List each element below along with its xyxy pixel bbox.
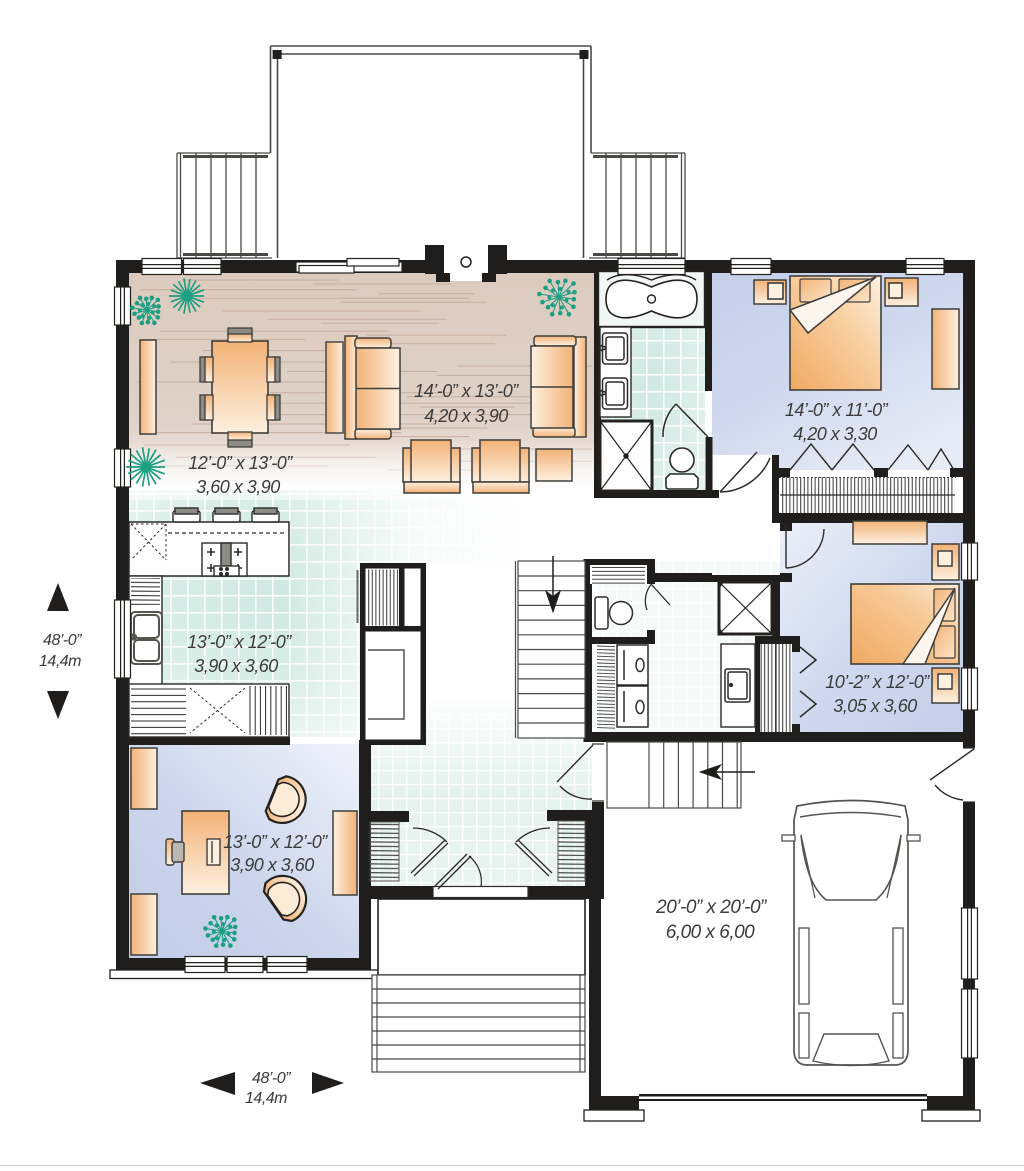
svg-text:3,90 x 3,60: 3,90 x 3,60 [194, 656, 278, 676]
svg-text:48’-0”: 48’-0” [252, 1070, 291, 1087]
svg-text:14’-0” x 11’-0”: 14’-0” x 11’-0” [785, 400, 889, 420]
svg-text:4,20 x 3,30: 4,20 x 3,30 [793, 424, 877, 444]
svg-text:3,90 x 3,60: 3,90 x 3,60 [230, 855, 314, 875]
svg-text:10’-2” x 12’-0”: 10’-2” x 12’-0” [825, 672, 930, 692]
svg-text:4,20 x 3,90: 4,20 x 3,90 [424, 406, 508, 426]
svg-text:13’-0” x 12’-0”: 13’-0” x 12’-0” [187, 632, 292, 652]
svg-text:6,00 x 6,00: 6,00 x 6,00 [666, 922, 755, 943]
svg-text:20’-0” x 20’-0”: 20’-0” x 20’-0” [655, 897, 768, 918]
svg-text:3,05 x 3,60: 3,05 x 3,60 [833, 696, 917, 716]
svg-text:14,4m: 14,4m [39, 653, 81, 670]
svg-text:48’-0”: 48’-0” [43, 632, 82, 649]
svg-text:3,60 x 3,90: 3,60 x 3,90 [196, 477, 280, 497]
svg-text:12’-0” x 13’-0”: 12’-0” x 13’-0” [188, 453, 293, 473]
svg-text:13’-0” x 12’-0”: 13’-0” x 12’-0” [223, 832, 328, 852]
svg-text:14’-0” x 13’-0”: 14’-0” x 13’-0” [414, 381, 519, 401]
svg-text:14,4m: 14,4m [245, 1090, 287, 1107]
